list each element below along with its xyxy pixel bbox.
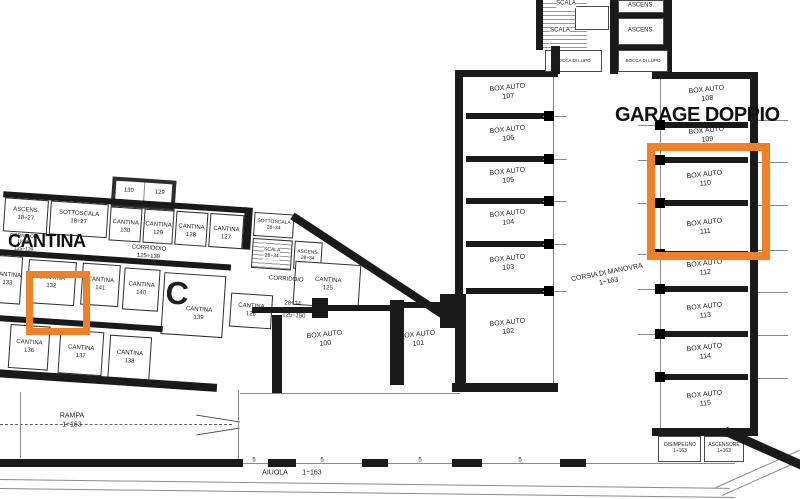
left-column-bottom-wall — [452, 383, 558, 392]
stall-105-label: BOX AUTO105 — [489, 166, 526, 187]
sep-104-103 — [466, 241, 552, 247]
highlight-cantina-132 — [26, 271, 90, 335]
aiuola-label: AIUOLA — [262, 470, 288, 479]
floor-plan: RAMPA1÷163 5 5 5 5 AIUOLA 1÷163 130 129 … — [0, 0, 800, 499]
stall-112-label: BOX AUTO112 — [686, 258, 723, 279]
stall-104-label: BOX AUTO104 — [489, 208, 526, 229]
scala-mid-label: SCALA — [550, 27, 570, 35]
sep-113-114 — [662, 331, 748, 337]
core2-wall — [242, 207, 253, 249]
garage-top-wall-left — [455, 70, 558, 77]
room-ascens-28-label: ASCENS.28÷34 — [297, 249, 320, 263]
aiuola-tick-2: 5 — [320, 457, 323, 465]
post-103-102 — [544, 286, 554, 296]
ramp-side-line-left — [20, 392, 21, 458]
aiuola-bar-4 — [560, 459, 586, 467]
room-cantina-129-label: CANTINA129 — [145, 221, 172, 238]
sep-107-106 — [466, 113, 552, 119]
aiuola-line — [243, 463, 735, 464]
room-bocca-right-label: BOCCA DI LUPO — [625, 58, 660, 64]
sep-105-104 — [466, 198, 552, 204]
rampa-label: RAMPA1÷163 — [60, 412, 84, 430]
garage-left-wall — [455, 70, 463, 392]
cantina-annotation: CANTINA — [8, 231, 86, 252]
room-cantina-128-label: CANTINA128 — [178, 223, 205, 240]
rampa-arrow-top — [196, 415, 240, 423]
highlight-garage-doppio — [647, 143, 770, 260]
stall-106-label: BOX AUTO106 — [489, 124, 526, 145]
stall-102-label: BOX AUTO102 — [489, 317, 526, 338]
left-column-aisle-line — [553, 77, 554, 383]
aiuola-tick-1: 5 — [252, 457, 255, 465]
corridoio-3-label: CORRIDOIO — [269, 275, 304, 285]
stall-115-label: BOX AUTO115 — [686, 389, 723, 410]
sep-112-113 — [662, 286, 748, 292]
room-ascensore-label: ASCENSORE1÷163 — [708, 442, 739, 455]
stall-113-label: BOX AUTO113 — [686, 301, 723, 322]
tick-r7 — [758, 378, 788, 379]
aiuola-tick-3: 5 — [418, 457, 421, 465]
room-ascens-18-label: ASCENS.18÷27 — [12, 206, 39, 223]
core-mid-wall — [610, 0, 618, 74]
curb-line-2 — [0, 488, 735, 498]
site-retaining-wall — [0, 459, 243, 467]
mid-wall-c — [404, 302, 440, 308]
sep-114-115 — [662, 374, 748, 380]
tick-r6 — [758, 335, 788, 336]
stall-108-label: BOX AUTO108 — [688, 84, 725, 105]
aiuola-tick-4: 5 — [518, 457, 521, 465]
post-104-103 — [544, 239, 554, 249]
sep-106-105 — [466, 156, 552, 162]
room-box-auto-100-label: BOX AUTO100 — [306, 329, 343, 350]
post-114-115 — [655, 372, 665, 382]
stall-103-label: BOX AUTO103 — [489, 253, 526, 274]
room-box-auto-101-label: BOX AUTO101 — [399, 329, 436, 350]
room-sottoscala-18-label: SOTTOSCALA18÷27 — [58, 209, 99, 227]
aiuola-bar-2 — [362, 459, 388, 467]
rampa-arrow-bottom — [196, 428, 240, 436]
post-107-106 — [544, 111, 554, 121]
mid-wall-notch — [312, 298, 328, 318]
attic-cell-130: 130 — [123, 187, 133, 195]
room-cantina-130-label: CANTINA130 — [112, 219, 139, 236]
room-cantina-136-label: CANTINA136 — [16, 339, 43, 356]
stair-landing — [575, 6, 609, 30]
room-cantina-137-label: CANTINA137 — [67, 344, 94, 361]
stair-left-wall — [536, 0, 543, 50]
room-cantina-140-label: CANTINA140 — [128, 281, 155, 298]
tick-r5 — [758, 292, 788, 293]
corsia-di-manovra-label: CORSIA DI MANOVRA1÷163 — [571, 262, 646, 293]
aiuola-quota: 1÷163 — [302, 470, 321, 479]
rampa-dashed-line — [0, 424, 232, 425]
attic-cell-129: 129 — [154, 190, 164, 198]
room-bocca-left-label: BOCCA DI LUPO — [555, 58, 590, 64]
room-ascens-top-label: ASCENS. — [628, 2, 654, 10]
mid-left-wall — [272, 315, 282, 393]
room-scala-28-label: SCALA28÷34 — [263, 246, 280, 260]
stall-107-label: BOX AUTO107 — [489, 82, 526, 103]
room-cantina-138-label: CANTINA138 — [116, 350, 143, 367]
post-106-105 — [544, 154, 554, 164]
aiuola-bar-1 — [268, 459, 296, 467]
room-disimpegno-label: DISIMPEGNO1÷163 — [664, 442, 696, 455]
post-112-113 — [655, 284, 665, 294]
room-cantina-139-label: CANTINA139 — [185, 306, 212, 323]
scala-top-label: SCALA — [556, 0, 576, 8]
post-113-114 — [655, 329, 665, 339]
curb-line-1 — [0, 479, 730, 489]
aiuola-bar-3 — [452, 459, 482, 467]
garage-doppio-annotation: GARAGE DOPPIO — [615, 104, 780, 127]
room-cantina-133-label: CANTINA133 — [0, 271, 21, 288]
stall-114-label: BOX AUTO114 — [686, 342, 723, 363]
mid-wall-a — [252, 307, 312, 313]
mid-wall-b — [328, 305, 390, 311]
post-105-104 — [544, 196, 554, 206]
room-cantina-127-label: CANTINA127 — [212, 226, 239, 243]
room-sottoscala-28-label: SOTTOSCALA28÷34 — [257, 218, 291, 233]
room-ascens-mid-label: ASCENS. — [628, 27, 654, 35]
room-cantina-125-label: CANTINA125 — [314, 277, 341, 294]
corridoio-mid-label: CORRIDOIO125÷139 — [131, 244, 167, 261]
room-cantina-141-label: CANTINA141 — [87, 277, 114, 294]
sep-103-102 — [466, 288, 552, 294]
quota-125-150-label: 125÷150 — [282, 312, 306, 321]
